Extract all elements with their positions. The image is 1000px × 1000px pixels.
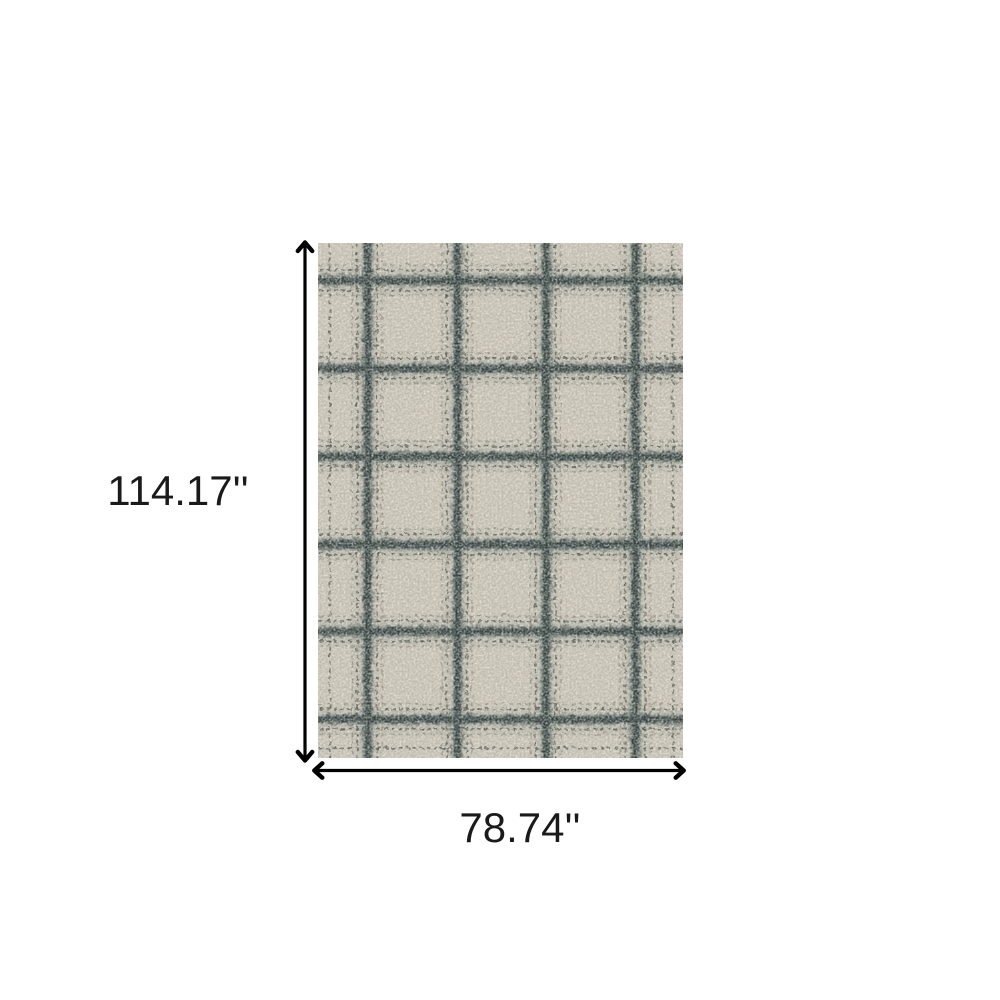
svg-text:78.74'': 78.74'' bbox=[459, 804, 580, 851]
svg-text:114.17'': 114.17'' bbox=[107, 467, 248, 514]
